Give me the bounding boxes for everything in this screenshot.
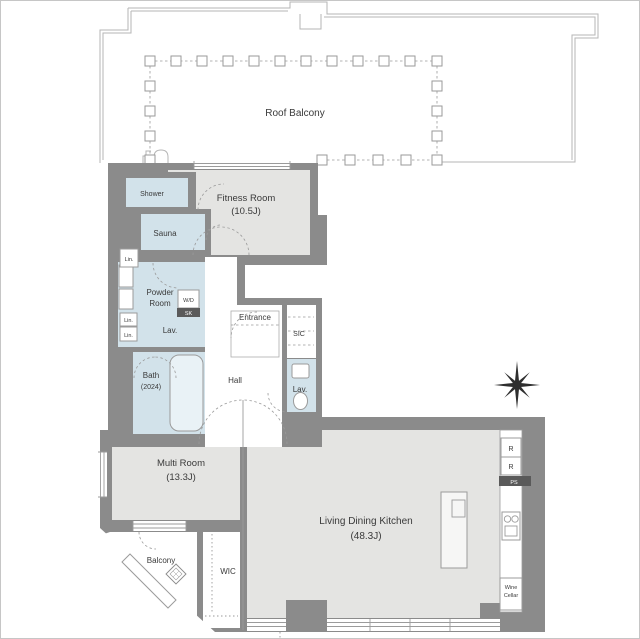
wine-cellar-label-2: Cellar bbox=[504, 593, 519, 599]
multi-room-label: Multi Room bbox=[157, 458, 205, 469]
floor-plan-svg: Roof Balcony bbox=[0, 0, 640, 639]
balcony-label: Balcony bbox=[147, 556, 175, 565]
cooktop-icon bbox=[502, 512, 520, 540]
bath-size-label: (2024) bbox=[141, 384, 161, 391]
entrance-label: Entrance bbox=[239, 313, 272, 322]
bathtub-icon bbox=[170, 355, 203, 431]
sk-label: SK bbox=[185, 311, 193, 317]
powder-room-label-1: Powder bbox=[146, 288, 173, 297]
multi-room-area: (13.3J) bbox=[166, 472, 196, 483]
roof-balcony-label: Roof Balcony bbox=[265, 108, 324, 119]
pipe-space-label: PS bbox=[510, 480, 518, 486]
refrigerator-label-2: R bbox=[508, 464, 513, 471]
ldk-label: Living Dining Kitchen bbox=[319, 516, 412, 527]
refrigerator-label-1: R bbox=[508, 446, 513, 453]
lavatory-powder-label: Lav. bbox=[163, 326, 178, 335]
wine-cellar-label-1: Wine bbox=[505, 585, 518, 591]
fitness-room-label: Fitness Room bbox=[217, 193, 276, 204]
bath-label: Bath bbox=[143, 371, 159, 380]
sauna-label: Sauna bbox=[153, 229, 177, 238]
fitness-room-area: (10.5J) bbox=[231, 206, 261, 217]
wic-label: WIC bbox=[220, 567, 236, 576]
linen-label-2: Lin. bbox=[124, 318, 133, 324]
washer-dryer-label: W/D bbox=[183, 298, 194, 304]
ldk-area-label: (48.3J) bbox=[350, 531, 381, 542]
linen-label-3: Lin. bbox=[124, 333, 133, 339]
shower-label: Shower bbox=[140, 191, 164, 198]
linen-label-1: Lin. bbox=[125, 257, 134, 263]
vanity-basin-icon bbox=[119, 265, 133, 287]
sic-label: SIC bbox=[293, 331, 305, 338]
wic-room bbox=[203, 532, 240, 628]
kitchen-island-icon bbox=[441, 492, 467, 568]
floor-plan: Roof Balcony bbox=[0, 0, 640, 639]
powder-room-label-2: Room bbox=[149, 299, 171, 308]
hall-label: Hall bbox=[228, 376, 242, 385]
vanity-basin-icon bbox=[119, 289, 133, 309]
lavatory-toilet-label: Lav. bbox=[293, 385, 308, 394]
